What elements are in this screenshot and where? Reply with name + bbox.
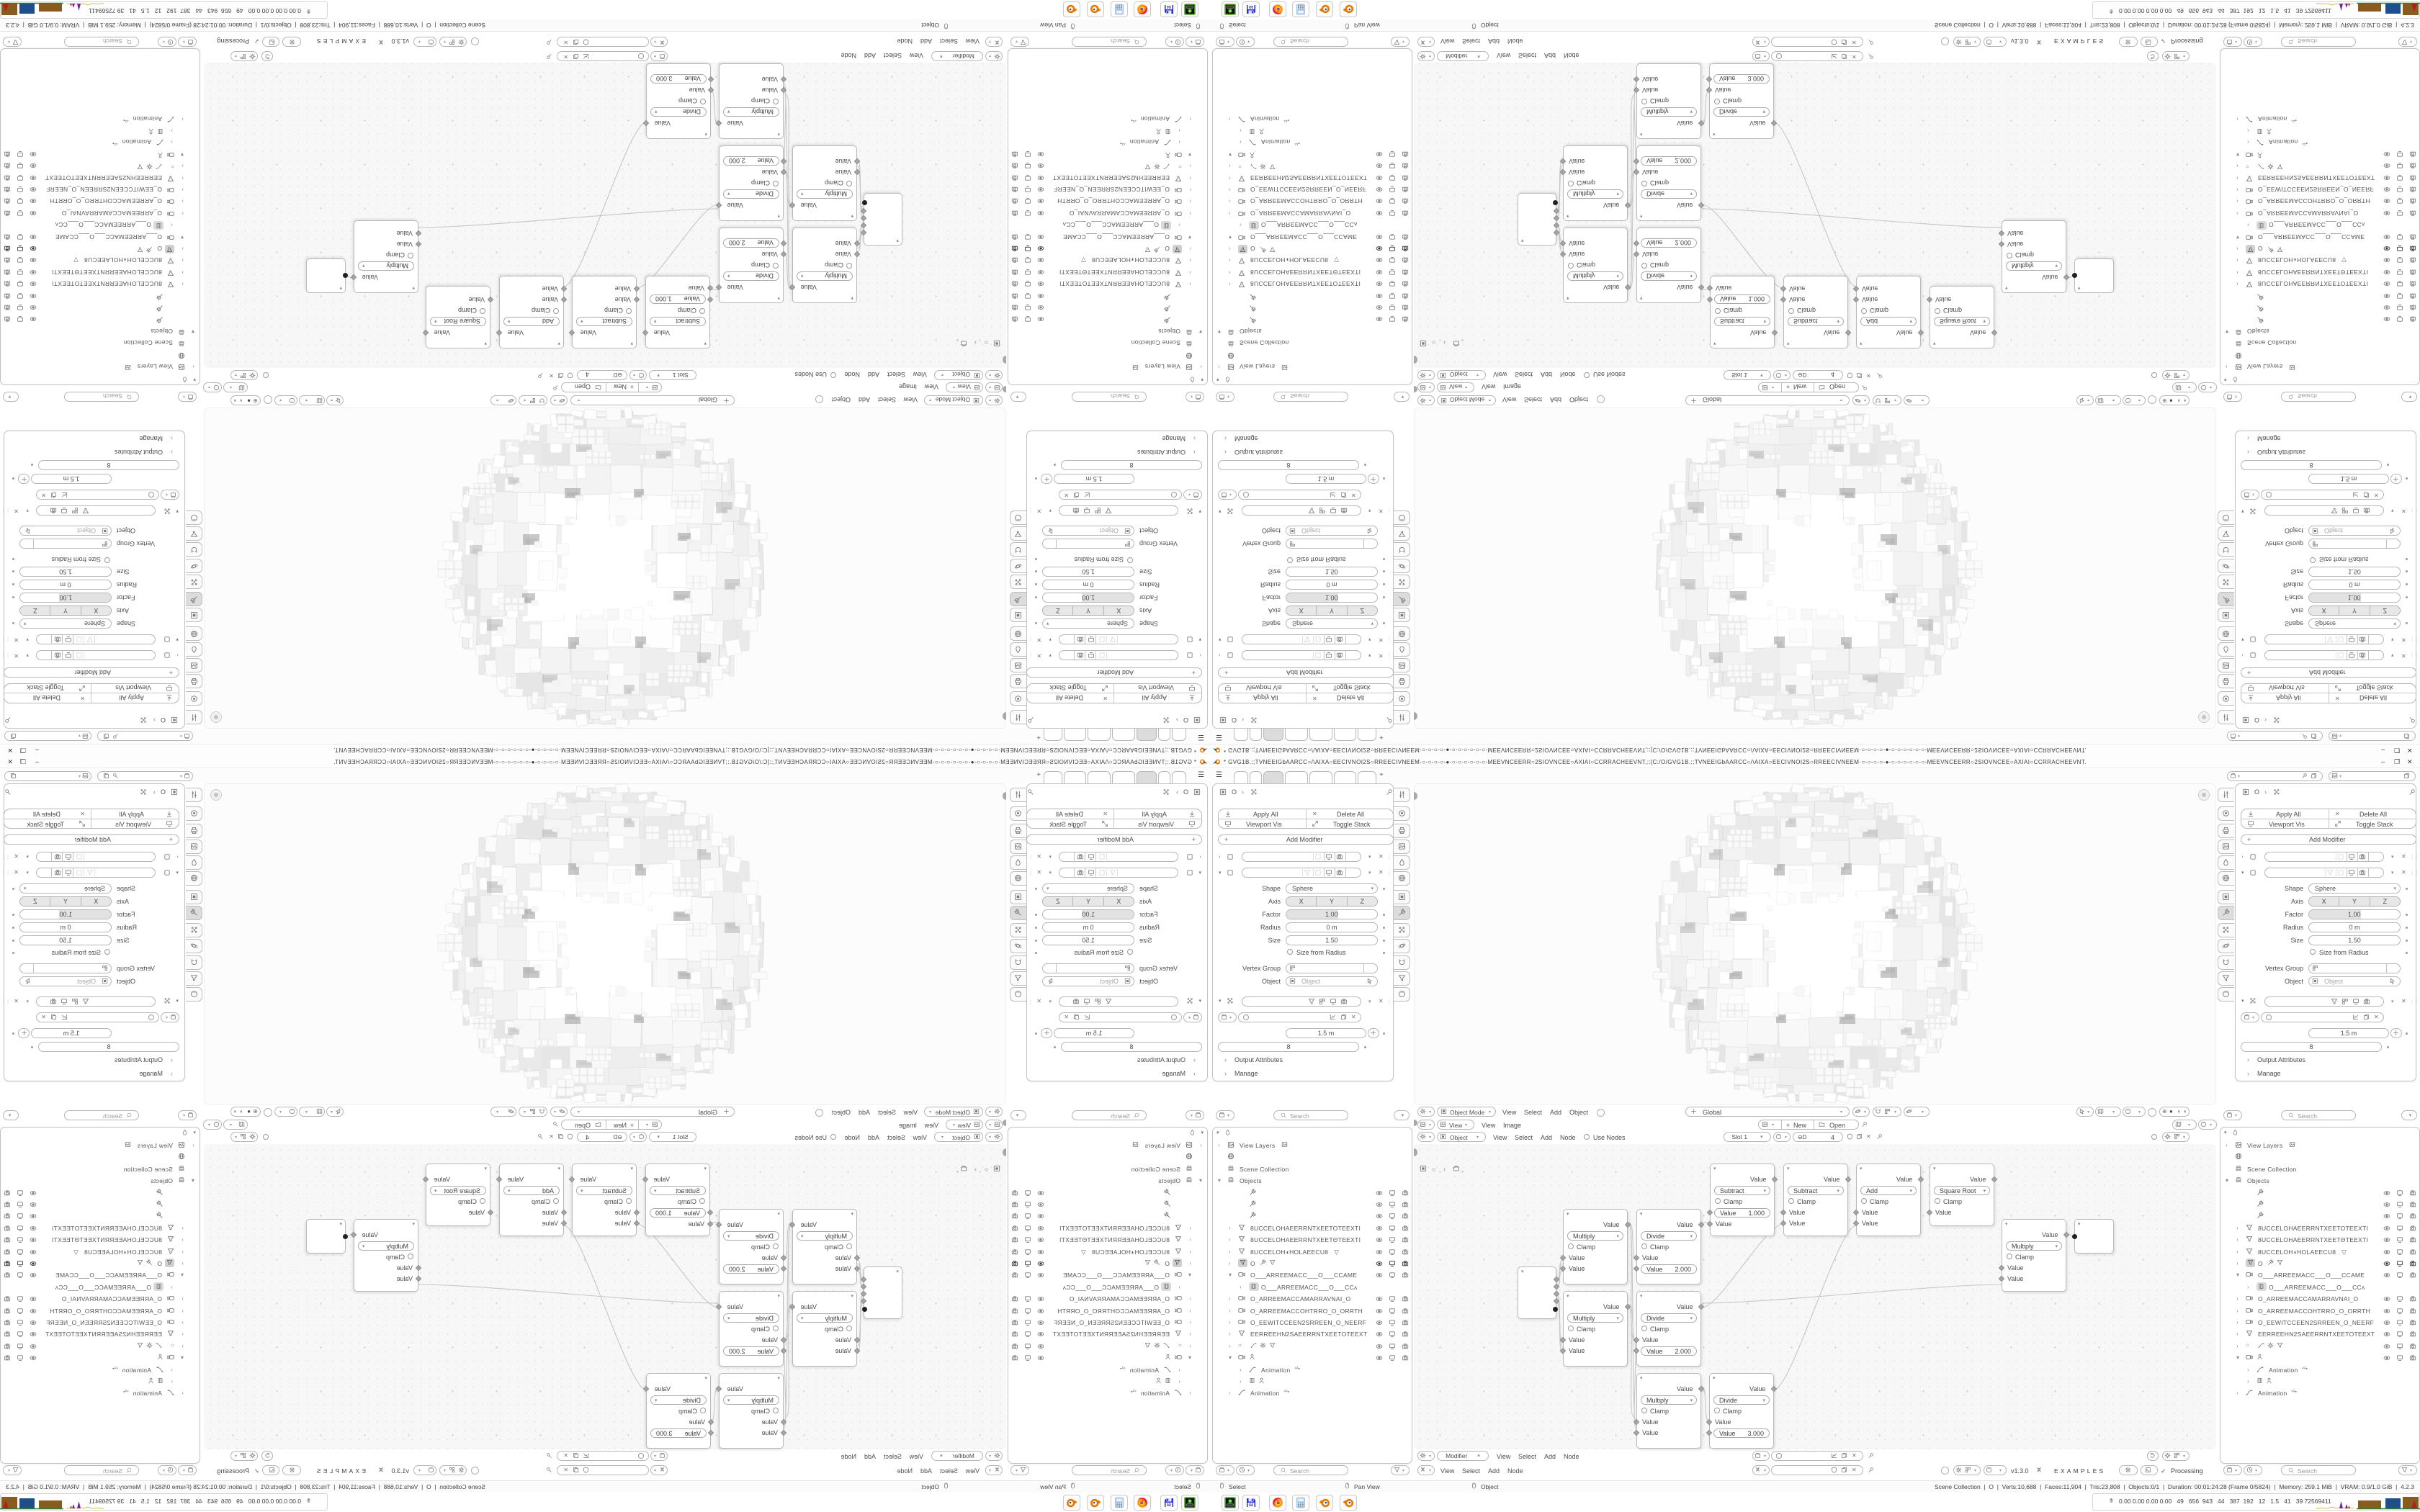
svg-text:64: 64	[1167, 4, 1171, 9]
svg-text:64: 64	[1167, 1503, 1171, 1508]
svg-text:64: 64	[1249, 1503, 1253, 1508]
svg-text:64: 64	[1249, 4, 1253, 9]
